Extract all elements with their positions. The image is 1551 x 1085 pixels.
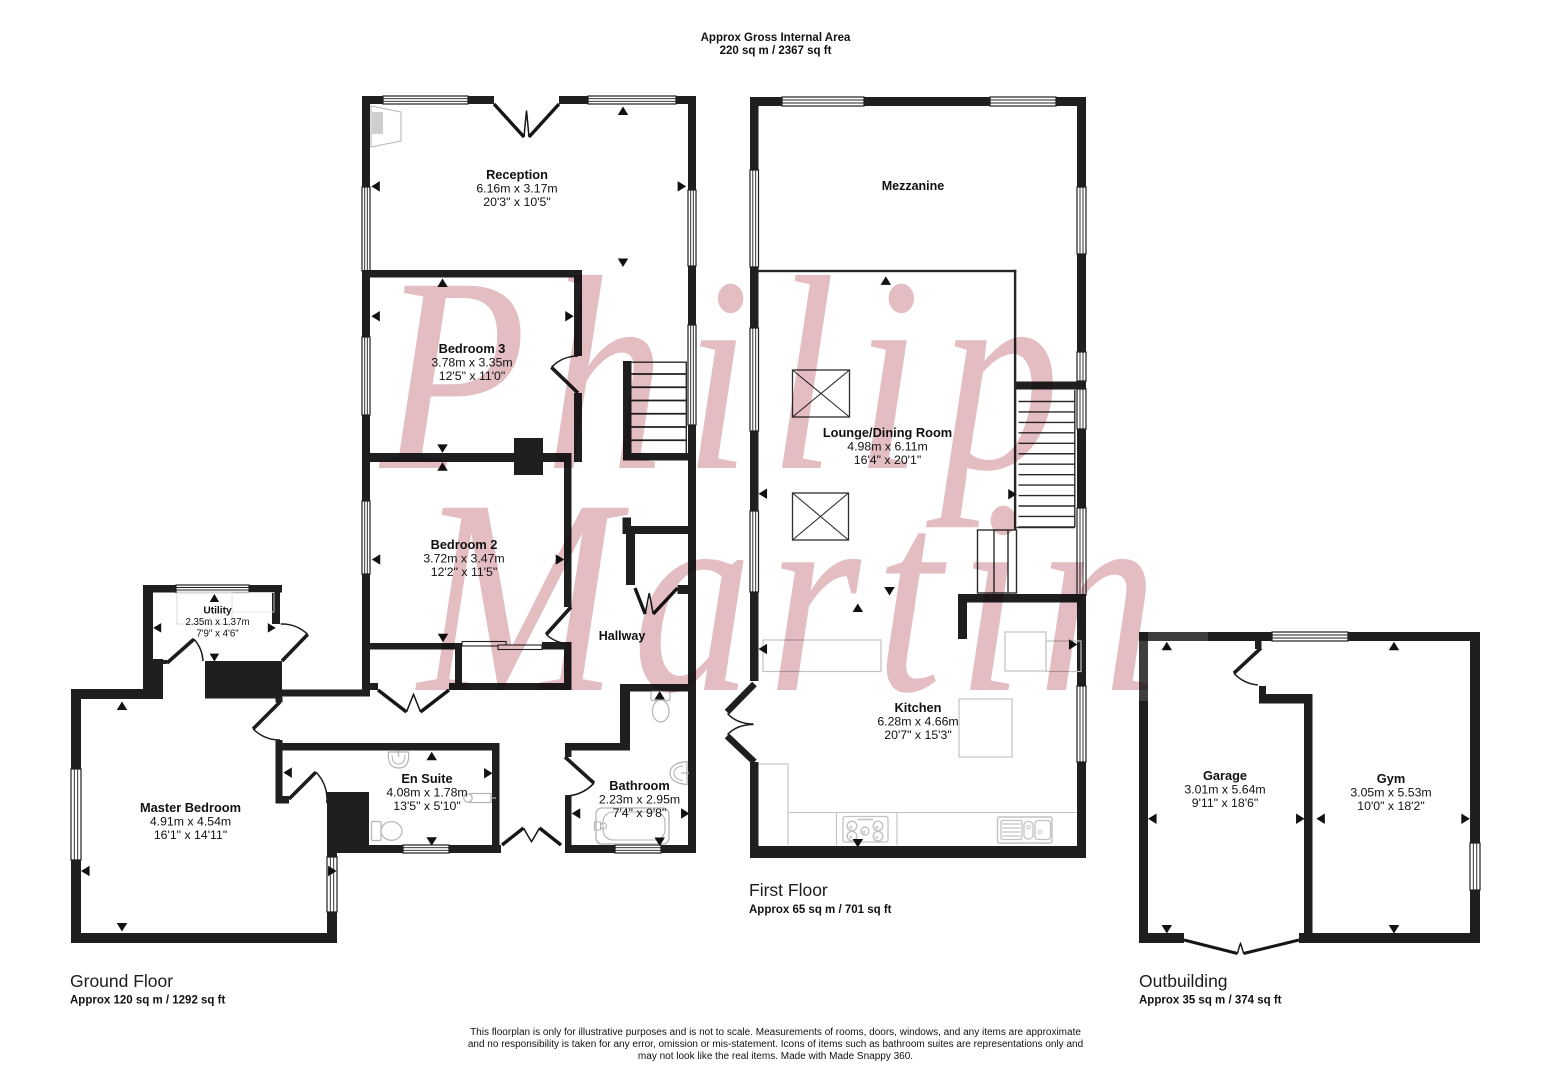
svg-text:Garage: Garage [1203, 768, 1247, 783]
svg-text:Master Bedroom: Master Bedroom [140, 800, 241, 815]
svg-text:3.72m x 3.47m: 3.72m x 3.47m [423, 552, 504, 566]
svg-text:10'0" x 18'2": 10'0" x 18'2" [1357, 799, 1424, 813]
svg-text:Bedroom 2: Bedroom 2 [431, 537, 498, 552]
svg-text:3.78m x 3.35m: 3.78m x 3.35m [431, 356, 512, 370]
svg-text:6.16m x 3.17m: 6.16m x 3.17m [476, 182, 557, 196]
svg-text:13'5" x 5'10": 13'5" x 5'10" [393, 799, 460, 813]
svg-text:En Suite: En Suite [401, 771, 452, 786]
svg-text:Kitchen: Kitchen [895, 700, 942, 715]
svg-text:Outbuilding: Outbuilding [1139, 971, 1228, 991]
svg-text:Hallway: Hallway [599, 629, 646, 643]
svg-text:16'4" x 20'1": 16'4" x 20'1" [854, 453, 921, 467]
svg-text:4.08m x 1.78m: 4.08m x 1.78m [386, 786, 467, 800]
svg-text:and no responsibility is taken: and no responsibility is taken for any e… [468, 1039, 1083, 1050]
svg-text:12'2" x 11'5": 12'2" x 11'5" [431, 565, 498, 579]
svg-text:Gym: Gym [1377, 771, 1405, 786]
svg-text:2.35m x 1.37m: 2.35m x 1.37m [185, 617, 249, 628]
svg-text:7'4" x 9'8": 7'4" x 9'8" [613, 806, 667, 820]
svg-text:7'9" x 4'6": 7'9" x 4'6" [196, 629, 239, 640]
svg-text:2.23m x 2.95m: 2.23m x 2.95m [599, 793, 680, 807]
svg-text:Approx 120 sq m / 1292 sq ft: Approx 120 sq m / 1292 sq ft [70, 995, 225, 1007]
svg-text:Reception: Reception [486, 167, 548, 182]
svg-text:20'3" x 10'5": 20'3" x 10'5" [483, 195, 550, 209]
svg-text:Utility: Utility [203, 606, 232, 617]
svg-text:3.05m x 5.53m: 3.05m x 5.53m [1350, 786, 1431, 800]
svg-text:Mezzanine: Mezzanine [882, 179, 945, 193]
svg-text:220 sq m / 2367 sq ft: 220 sq m / 2367 sq ft [720, 45, 832, 57]
svg-text:Approx 65 sq m / 701 sq ft: Approx 65 sq m / 701 sq ft [749, 904, 892, 916]
svg-text:Approx 35 sq m / 374 sq ft: Approx 35 sq m / 374 sq ft [1139, 995, 1282, 1007]
svg-text:Lounge/Dining Room: Lounge/Dining Room [823, 425, 952, 440]
svg-text:6.28m x 4.66m: 6.28m x 4.66m [877, 715, 958, 729]
svg-text:20'7" x 15'3": 20'7" x 15'3" [884, 728, 951, 742]
svg-text:16'1" x 14'11": 16'1" x 14'11" [154, 828, 227, 842]
svg-text:3.01m x 5.64m: 3.01m x 5.64m [1184, 783, 1265, 797]
svg-text:9'11" x 18'6": 9'11" x 18'6" [1192, 796, 1259, 810]
svg-text:4.91m x 4.54m: 4.91m x 4.54m [150, 815, 231, 829]
svg-text:Bathroom: Bathroom [609, 778, 669, 793]
svg-text:Martin: Martin [414, 443, 1158, 751]
svg-text:First Floor: First Floor [749, 880, 828, 900]
svg-text:4.98m x 6.11m: 4.98m x 6.11m [847, 440, 927, 454]
svg-text:12'5" x 11'0": 12'5" x 11'0" [439, 369, 506, 383]
svg-text:This floorplan is only for ill: This floorplan is only for illustrative … [470, 1027, 1081, 1038]
svg-text:Bedroom 3: Bedroom 3 [439, 341, 506, 356]
svg-text:may not look like the real ite: may not look like the real items. Made w… [638, 1051, 913, 1062]
svg-text:Approx Gross Internal Area: Approx Gross Internal Area [701, 32, 851, 44]
svg-text:Ground Floor: Ground Floor [70, 971, 173, 991]
